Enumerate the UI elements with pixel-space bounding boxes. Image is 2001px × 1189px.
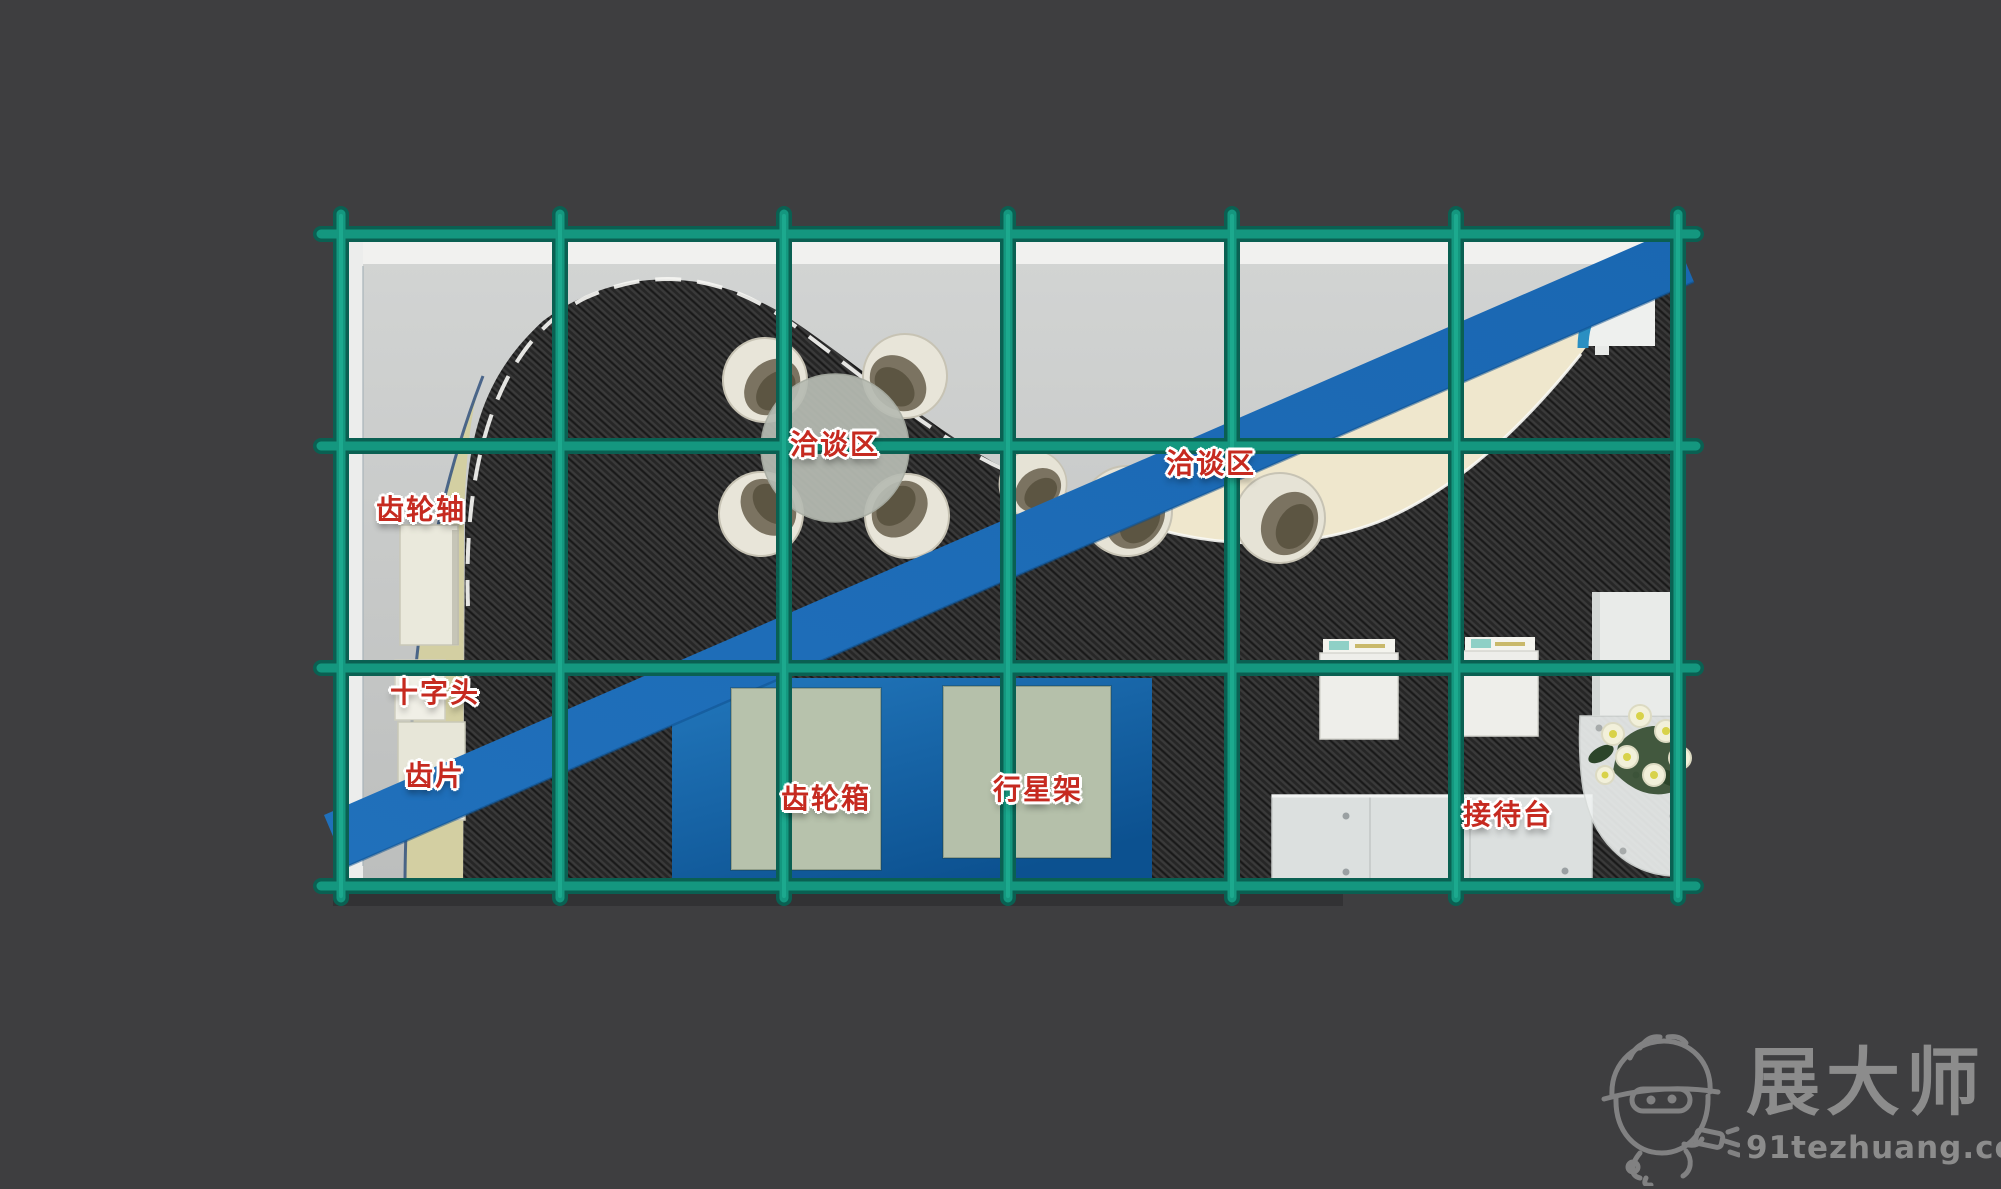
booth-plan-area: 齿轮轴 十字头 齿片 洽谈区 洽谈区 齿轮箱 行星架 接待台 [333, 226, 1686, 886]
watermark-site: 91tezhuang.com [1746, 1130, 2001, 1166]
left-wall-band [347, 240, 363, 886]
watermark: 展大师 91tezhuang.com [1588, 1026, 2000, 1186]
hardhat-mascot-drill-icon [1588, 1026, 1740, 1186]
reception-desk-wing [1592, 592, 1682, 716]
label-gearbox: 齿轮箱 [781, 777, 871, 817]
watermark-brand: 展大师 [1746, 1046, 2001, 1120]
label-reception-desk: 接待台 [1463, 793, 1553, 833]
label-crosshead: 十字头 [390, 671, 480, 711]
label-gear-shaft: 齿轮轴 [376, 488, 466, 528]
label-negotiation-area-1: 洽谈区 [790, 423, 880, 463]
label-planet-carrier: 行星架 [993, 768, 1083, 808]
booth-floorplan-screenshot: 齿轮轴 十字头 齿片 洽谈区 洽谈区 齿轮箱 行星架 接待台 [0, 0, 2001, 1189]
label-gear-piece: 齿片 [405, 754, 465, 794]
watermark-text: 展大师 91tezhuang.com [1746, 1026, 2001, 1166]
label-negotiation-area-2: 洽谈区 [1166, 442, 1256, 482]
gear-shaft-stand [400, 525, 458, 645]
